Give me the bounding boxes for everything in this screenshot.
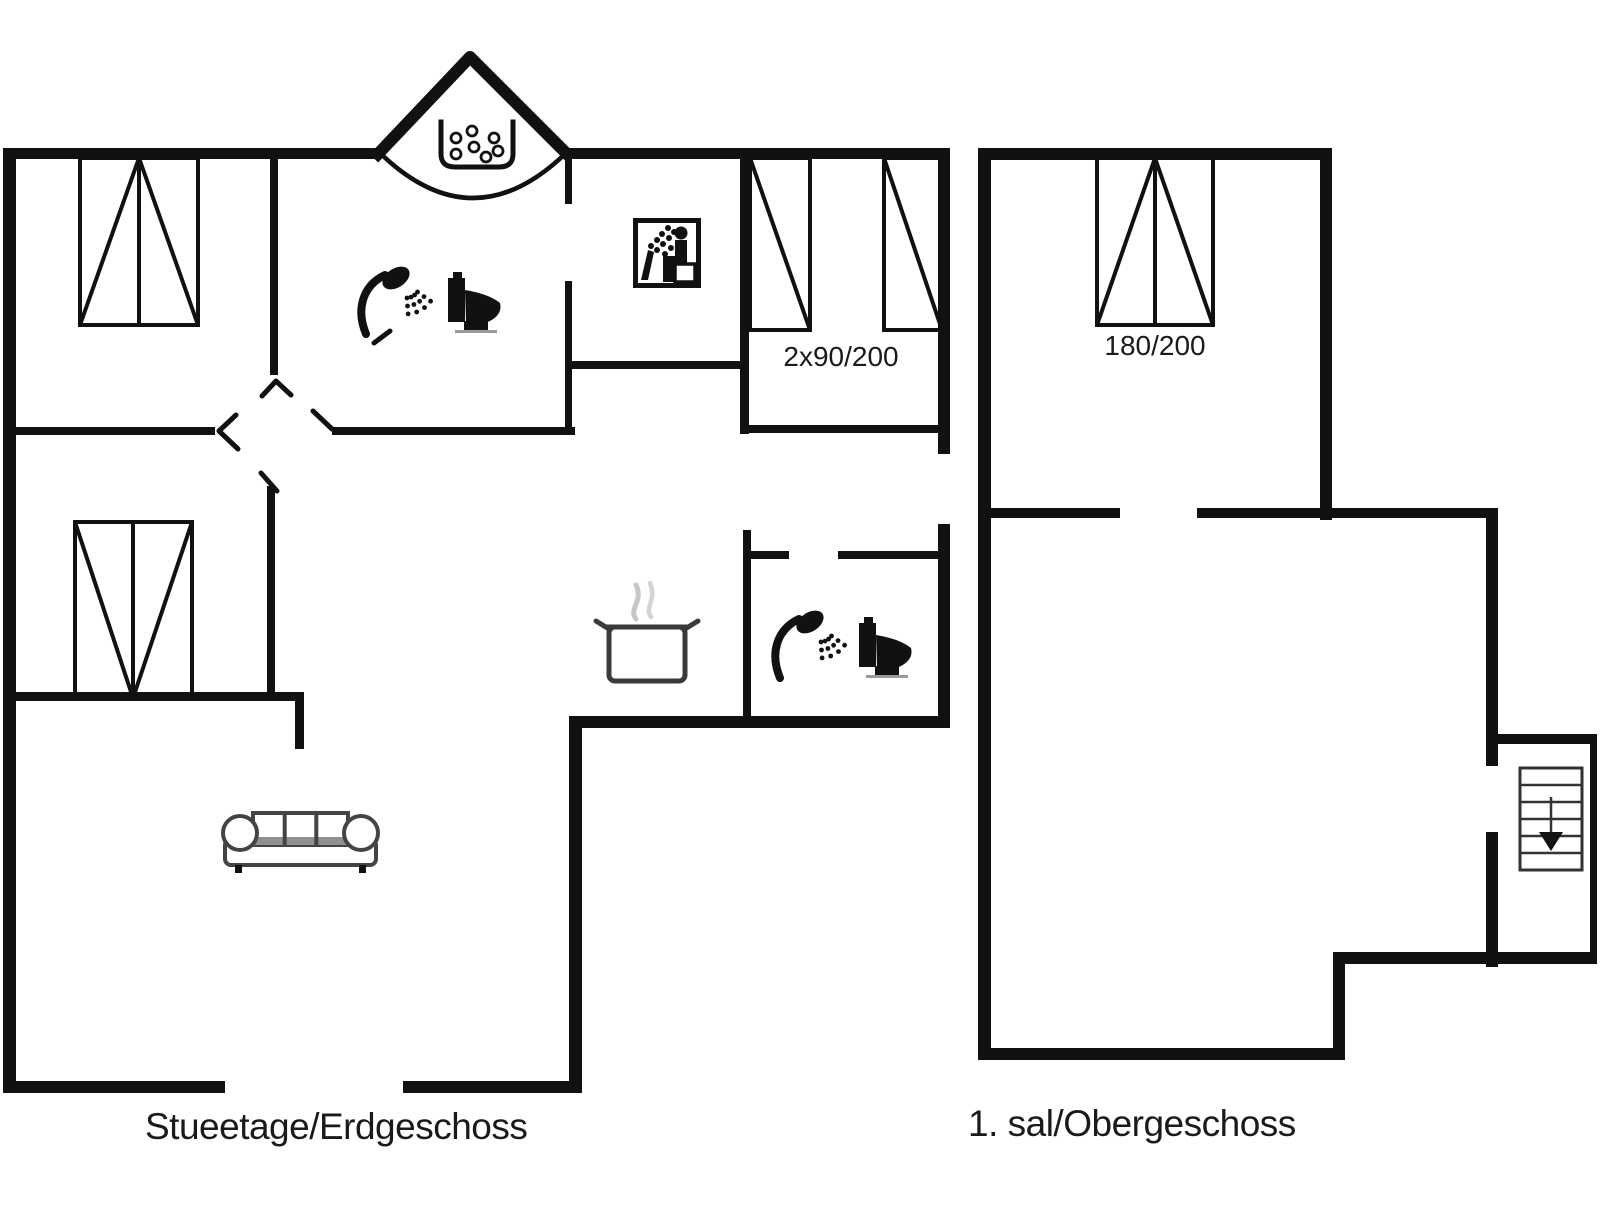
single-bed-symbol (884, 158, 942, 330)
cooking-pot-icon (596, 583, 698, 681)
floorplan-drawing: 2x90/200 (0, 0, 1606, 1205)
pot-body (609, 627, 685, 681)
bay-window-glass-arc (380, 153, 566, 198)
double-bed-symbol (75, 522, 192, 698)
shower-icon (775, 606, 847, 678)
double-bed-symbol (1097, 158, 1213, 325)
bed-size-label: 180/200 (1104, 330, 1205, 361)
whirlpool-bubbles (451, 126, 503, 162)
upper-floor-plan: 180/200 1. sal/Obergeschoss (968, 148, 1597, 1144)
sauna-person-head (675, 227, 688, 240)
upper-floor-outer-walls (978, 148, 1597, 1060)
sauna-bench (675, 264, 695, 282)
shower-icon (361, 262, 433, 334)
double-bed-symbol (80, 158, 198, 325)
steam-wisp (649, 583, 652, 617)
sofa-leg (359, 865, 366, 873)
sofa-armrest (344, 816, 378, 850)
ground-floor-label: Stueetage/Erdgeschoss (145, 1106, 527, 1147)
toilet-icon (448, 272, 501, 333)
bay-window-walls (378, 57, 567, 154)
sauna-person-body (675, 240, 687, 264)
bay-window (378, 57, 567, 198)
sofa-icon (223, 813, 378, 873)
stairs-down-icon (1520, 768, 1582, 870)
upper-floor-interior-walls (986, 508, 1597, 962)
single-bed-symbol (750, 158, 810, 330)
sofa-armrest (223, 816, 257, 850)
steam-wisp (634, 585, 639, 619)
floorplan-page: 2x90/200 (0, 0, 1606, 1205)
sauna-person-legs (663, 256, 675, 282)
sofa-leg (235, 865, 242, 873)
upper-floor-label: 1. sal/Obergeschoss (968, 1103, 1296, 1144)
sofa-shade-band (254, 837, 347, 845)
sauna-icon (636, 221, 699, 286)
bed-size-label: 2x90/200 (783, 341, 898, 372)
ground-floor-plan: 2x90/200 (3, 57, 950, 1147)
door-swing-marks (219, 331, 390, 491)
toilet-icon (859, 617, 912, 678)
whirlpool-tub-icon (441, 122, 513, 167)
